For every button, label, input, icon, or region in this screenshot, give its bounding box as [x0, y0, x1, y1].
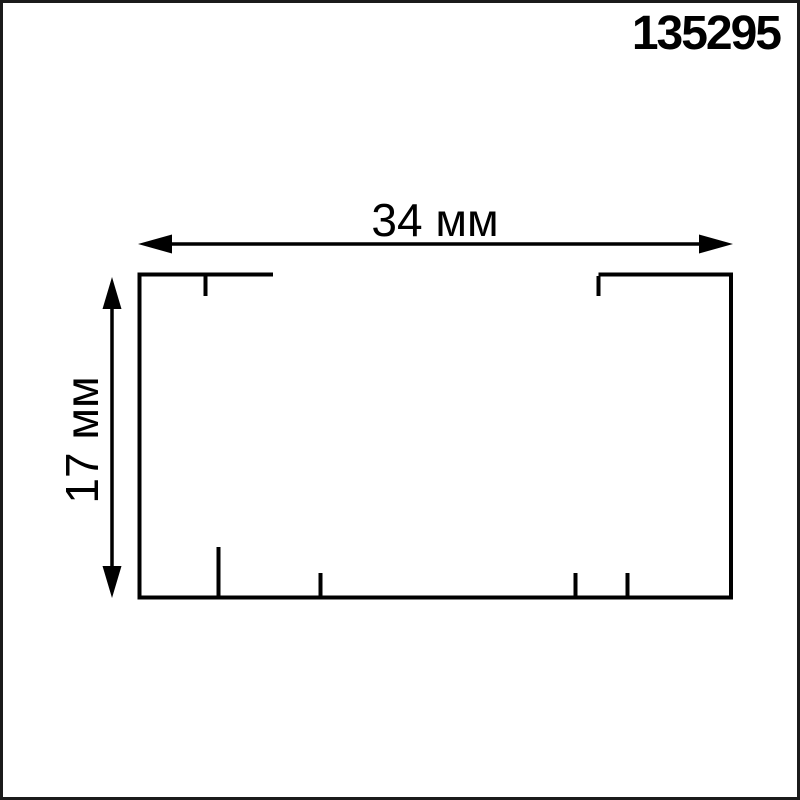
arrowhead-right-icon	[699, 235, 733, 254]
height-dimension-arrow	[103, 277, 122, 598]
width-dimension-arrow	[138, 235, 733, 254]
drawing-canvas: 135295 34 мм 17 мм	[0, 0, 800, 800]
profile-outline	[138, 273, 734, 599]
profile-cross-section-drawing	[0, 0, 800, 800]
arrowhead-down-icon	[103, 566, 122, 598]
arrowhead-up-icon	[103, 277, 122, 309]
arrowhead-left-icon	[138, 235, 172, 254]
